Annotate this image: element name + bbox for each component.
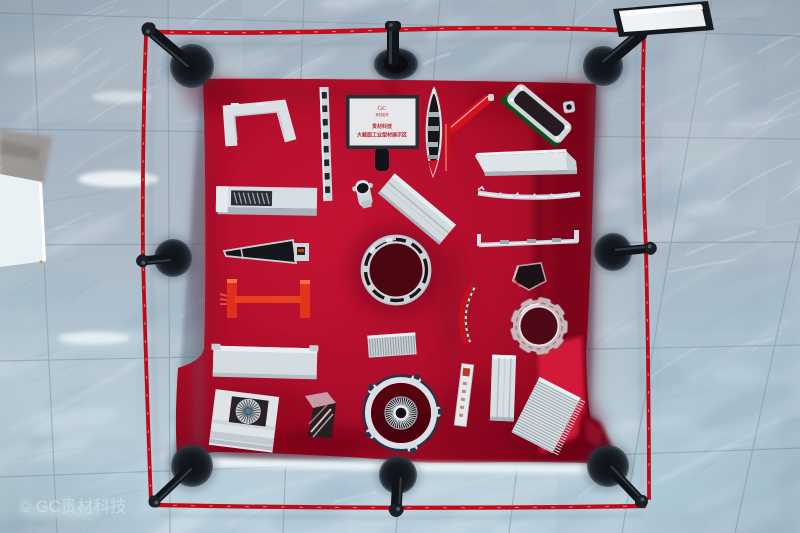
svg-text:© GC贵材科技: © GC贵材科技 bbox=[19, 497, 127, 516]
